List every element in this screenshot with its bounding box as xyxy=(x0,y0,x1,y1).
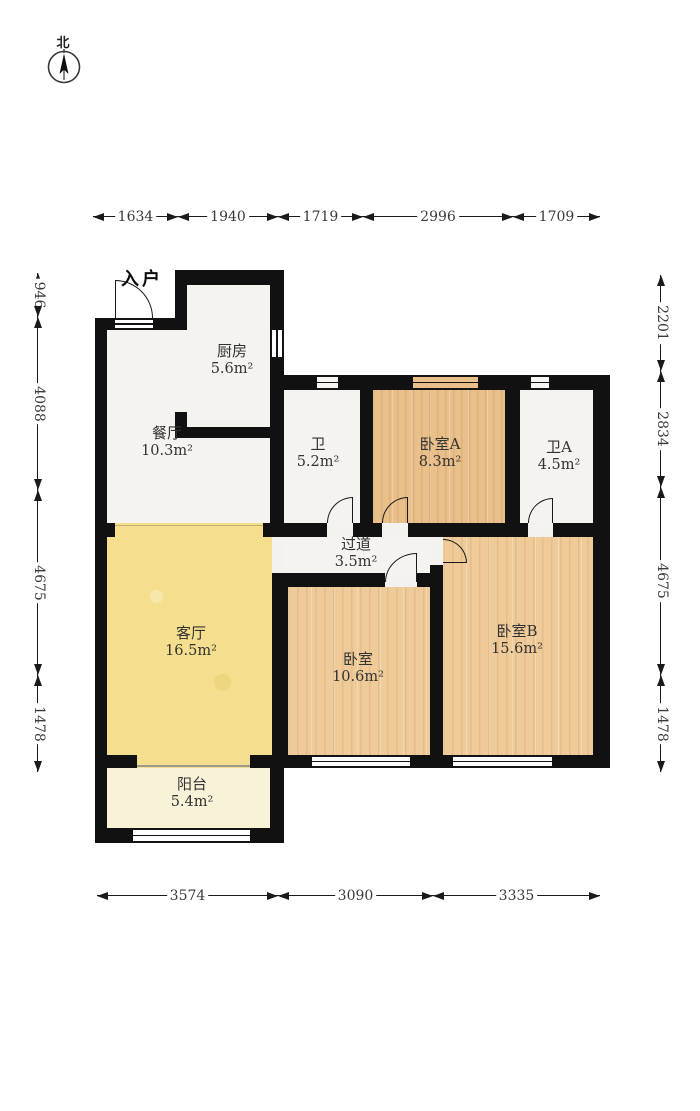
floor-plan-canvas: 北 xyxy=(0,0,700,1111)
room-label-bathA: 卫A 4.5m² xyxy=(538,439,581,474)
room-label-dining: 餐厅 10.3m² xyxy=(141,425,193,460)
wall xyxy=(478,375,531,390)
compass-icon xyxy=(46,49,82,85)
dim-segment: 2201 xyxy=(660,275,661,371)
wall xyxy=(272,587,288,755)
window xyxy=(531,375,549,390)
entry-threshold xyxy=(115,318,153,330)
dim-segment: 1709 xyxy=(513,216,600,217)
wall xyxy=(272,573,385,587)
wall xyxy=(593,375,610,768)
window xyxy=(312,755,410,768)
dim-segment: 1478 xyxy=(660,675,661,772)
wall xyxy=(270,270,284,330)
window xyxy=(270,330,284,357)
window xyxy=(413,375,478,390)
dim-segment: 3574 xyxy=(97,895,278,896)
dim-segment: 4088 xyxy=(37,317,38,490)
room-label-bath: 卫 5.2m² xyxy=(297,436,340,471)
window xyxy=(317,375,338,390)
dim-segment: 4675 xyxy=(660,487,661,675)
dim-segment: 2834 xyxy=(660,371,661,487)
dim-segment: 3335 xyxy=(433,895,600,896)
wall xyxy=(270,357,284,523)
room-label-bedroom: 卧室 10.6m² xyxy=(332,651,384,686)
wall xyxy=(505,390,520,523)
room-label-hallway: 过道 3.5m² xyxy=(335,536,378,571)
wall xyxy=(175,270,187,327)
wall xyxy=(360,390,373,523)
dim-segment: 1634 xyxy=(93,216,178,217)
wall xyxy=(270,755,284,843)
window xyxy=(133,828,250,843)
dim-segment: 1478 xyxy=(37,675,38,772)
wall xyxy=(408,523,528,537)
wall xyxy=(284,375,317,390)
dim-segment: 2996 xyxy=(363,216,513,217)
wall xyxy=(410,755,453,768)
dining-living-boundary-line xyxy=(115,525,263,526)
wall xyxy=(338,375,413,390)
dim-segment: 4675 xyxy=(37,490,38,675)
wall xyxy=(263,523,327,537)
room-label-balcony: 阳台 5.4m² xyxy=(171,776,214,811)
dim-segment: 3090 xyxy=(278,895,433,896)
room-label-entry: 入户 xyxy=(121,269,163,290)
wall xyxy=(175,270,284,285)
room-label-living: 客厅 16.5m² xyxy=(165,625,217,660)
dim-segment: 1940 xyxy=(178,216,278,217)
room-label-kitchen: 厨房 5.6m² xyxy=(211,343,254,378)
dim-segment: 1719 xyxy=(278,216,363,217)
room-label-bedroomA: 卧室A 8.3m² xyxy=(419,436,462,471)
room-label-bedroomB: 卧室B 15.6m² xyxy=(491,623,543,658)
window xyxy=(453,755,552,768)
wall xyxy=(430,565,443,755)
dim-segment: 946 xyxy=(37,273,38,317)
living-balcony-boundary-line xyxy=(137,765,250,767)
wall xyxy=(95,318,107,843)
